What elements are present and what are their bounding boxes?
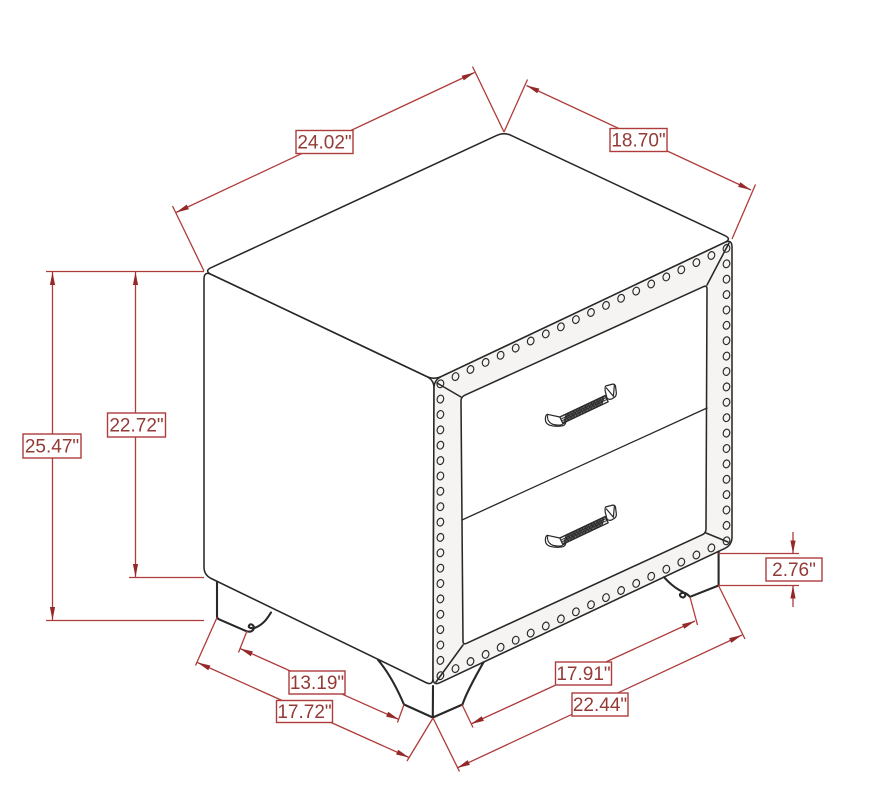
- svg-text:25.47": 25.47": [25, 437, 79, 458]
- svg-text:13.19": 13.19": [290, 673, 344, 694]
- svg-text:22.72": 22.72": [109, 416, 163, 437]
- svg-text:22.44": 22.44": [573, 695, 627, 716]
- svg-text:24.02": 24.02": [297, 133, 351, 154]
- svg-text:17.91": 17.91": [556, 664, 610, 685]
- svg-text:18.70": 18.70": [611, 131, 665, 152]
- svg-text:2.76": 2.76": [772, 560, 816, 581]
- svg-text:17.72": 17.72": [277, 702, 331, 723]
